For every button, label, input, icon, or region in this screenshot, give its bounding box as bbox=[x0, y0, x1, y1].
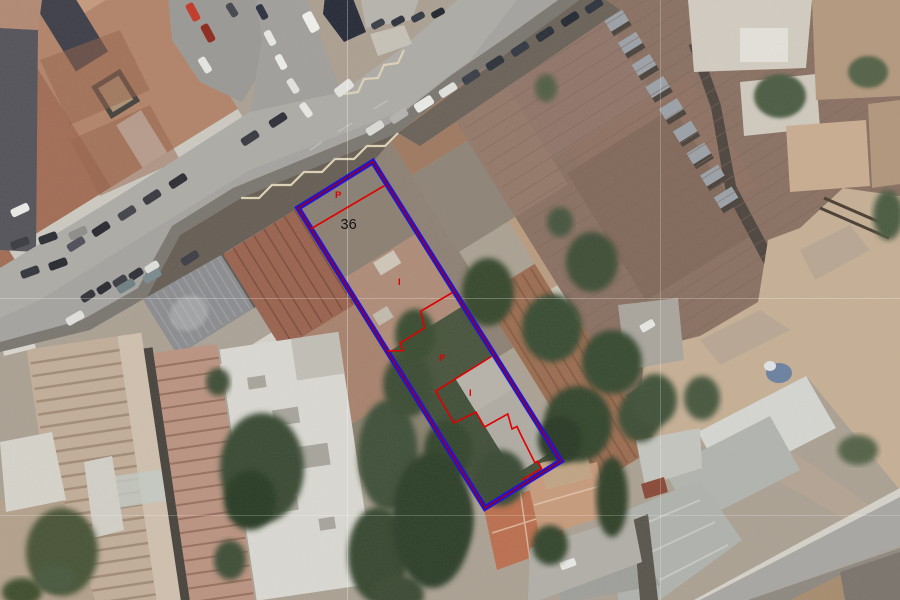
svg-text:I: I bbox=[398, 277, 401, 288]
svg-text:P: P bbox=[439, 353, 446, 364]
svg-text:36: 36 bbox=[341, 217, 357, 233]
svg-text:P: P bbox=[335, 190, 342, 201]
svg-text:I: I bbox=[469, 388, 472, 399]
